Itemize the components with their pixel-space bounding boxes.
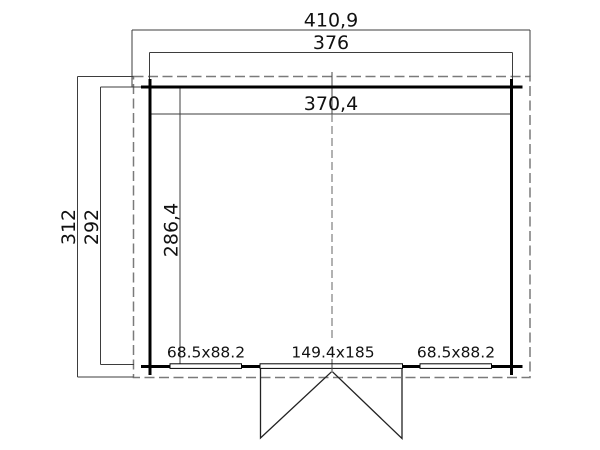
label-inner-depth: 286,4	[161, 203, 183, 257]
window-right	[420, 364, 492, 369]
label-door: 149.4x185	[291, 344, 374, 362]
label-inner-width: 370,4	[304, 93, 358, 115]
door-leaf-left	[261, 368, 332, 438]
label-window-left: 68.5x88.2	[167, 344, 245, 362]
label-window-right: 68.5x88.2	[417, 344, 495, 362]
dimension-outer-width	[150, 53, 513, 88]
label-outer-width: 376	[313, 32, 349, 54]
floorplan-drawing: 410,9 376 370,4 312 292 286,4 68.5x88.2 …	[0, 0, 600, 450]
floorplan-canvas: 410,9 376 370,4 312 292 286,4 68.5x88.2 …	[0, 0, 600, 450]
label-roof-width: 410,9	[304, 10, 358, 32]
label-roof-depth: 312	[58, 209, 80, 245]
label-outer-depth: 292	[81, 209, 103, 245]
door-leaf-right	[333, 368, 403, 438]
door-frame	[260, 364, 403, 369]
window-left	[170, 364, 242, 369]
dimension-outer-depth	[101, 87, 151, 365]
